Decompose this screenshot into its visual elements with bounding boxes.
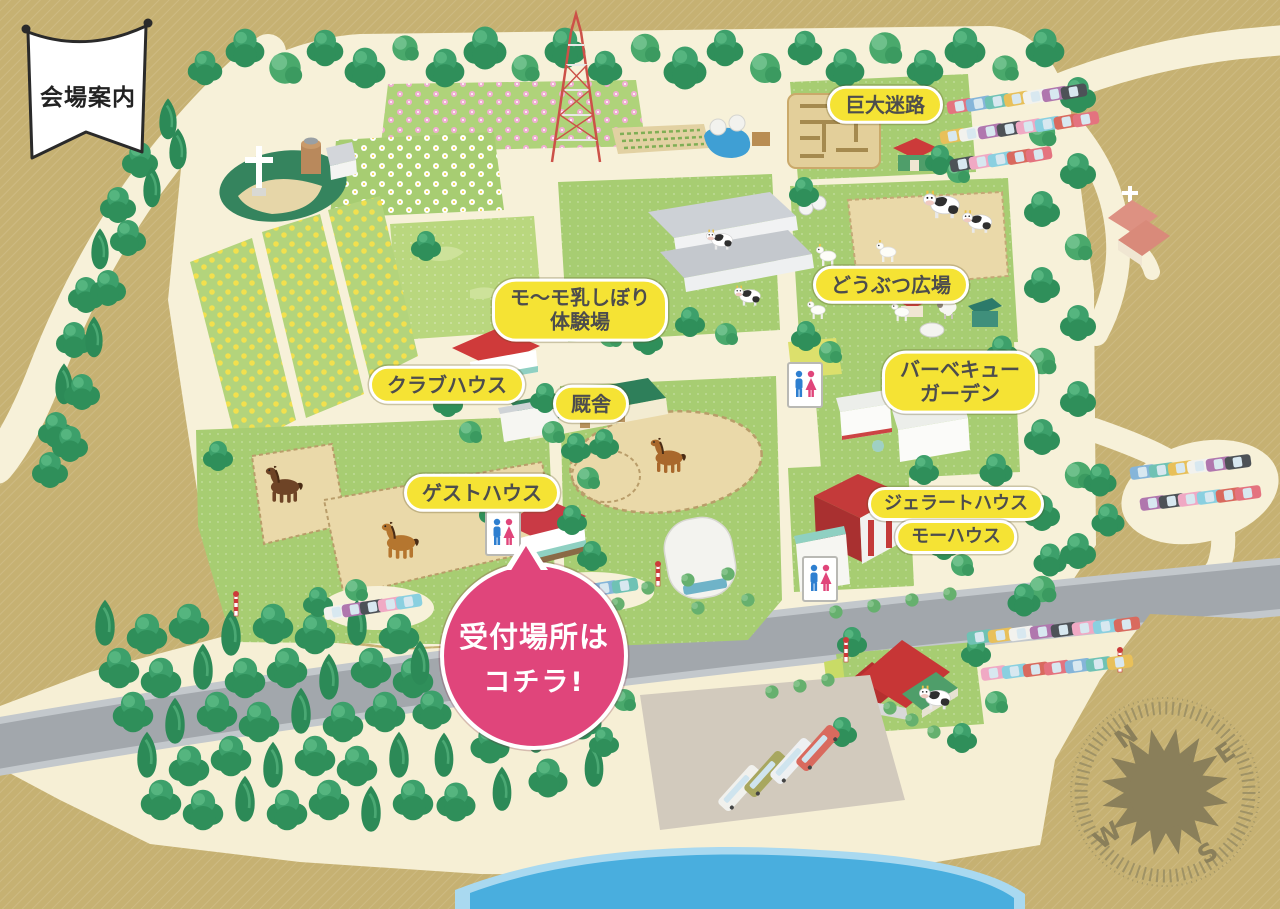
pole-top [655, 561, 661, 567]
map-scenery: N E S W [0, 0, 1280, 909]
pole-stripe [844, 645, 848, 649]
map-shape [245, 157, 273, 163]
label-clubhouse: クラブハウス [369, 366, 525, 404]
venue-guide-banner: 会場案内 [14, 12, 164, 172]
pole-stripe [656, 569, 660, 573]
pole-stripe [234, 607, 238, 611]
map-shape [920, 323, 944, 337]
venue-illustrated-map: N E S W 巨大迷路 モ〜モ乳しぼり 体験場 どうぶつ広場 クラブハウス 厩… [0, 0, 1280, 909]
map-shape [256, 146, 262, 190]
bush [741, 593, 754, 606]
bush [641, 581, 654, 594]
label-line: ガーデン [900, 382, 1020, 406]
restroom-icon-bbq [787, 362, 823, 408]
bush [883, 701, 896, 714]
label-line: モ〜モ乳しぼり [510, 286, 650, 310]
label-animal-plaza: どうぶつ広場 [813, 266, 969, 304]
label-milking-experience: モ〜モ乳しぼり 体験場 [492, 279, 668, 342]
label-stable: 厩舎 [553, 385, 629, 423]
bush [721, 567, 734, 580]
bush [905, 713, 918, 726]
map-shape [304, 138, 318, 145]
pole-stripe [234, 599, 238, 603]
label-bbq-garden: バーベキュー ガーデン [882, 351, 1038, 414]
callout-line2: コチラ! [483, 660, 584, 699]
label-giant-maze: 巨大迷路 [827, 86, 943, 124]
callout-line1: 受付場所は [459, 614, 609, 656]
bush [765, 685, 778, 698]
bush [681, 573, 694, 586]
barrier-pole [655, 561, 661, 586]
pole-stripe [656, 577, 660, 581]
bush [793, 679, 806, 692]
restroom-icon-gelato [802, 556, 838, 602]
pole-top [233, 591, 239, 597]
label-line: 体験場 [510, 310, 650, 334]
map-shape [752, 132, 770, 146]
map-shape [1122, 191, 1138, 195]
map-shape [729, 115, 745, 131]
map-shape [252, 188, 266, 196]
reception-callout: 受付場所は コチラ! [440, 562, 628, 750]
callout-pointer [510, 546, 542, 572]
bush [821, 673, 834, 686]
map-shape [972, 311, 998, 327]
label-line: バーベキュー [900, 358, 1020, 382]
bush [691, 601, 704, 614]
barrier-pole [233, 591, 239, 616]
map-shape [910, 160, 919, 171]
label-guest-house: ゲストハウス [404, 474, 560, 512]
pole-top [843, 637, 849, 643]
bush [927, 725, 940, 738]
pole-top [1117, 647, 1123, 653]
map-shape [868, 520, 874, 556]
bush [943, 587, 956, 600]
label-gelato-house: ジェラートハウス [868, 487, 1044, 521]
banner-title: 会場案内 [28, 78, 148, 112]
bush [829, 605, 842, 618]
pole-stripe [844, 653, 848, 657]
map-shape [710, 119, 726, 135]
barrier-pole [843, 637, 849, 662]
map-shape [872, 440, 884, 452]
bush [867, 599, 880, 612]
label-moo-house: モーハウス [895, 520, 1017, 554]
bush [905, 593, 918, 606]
